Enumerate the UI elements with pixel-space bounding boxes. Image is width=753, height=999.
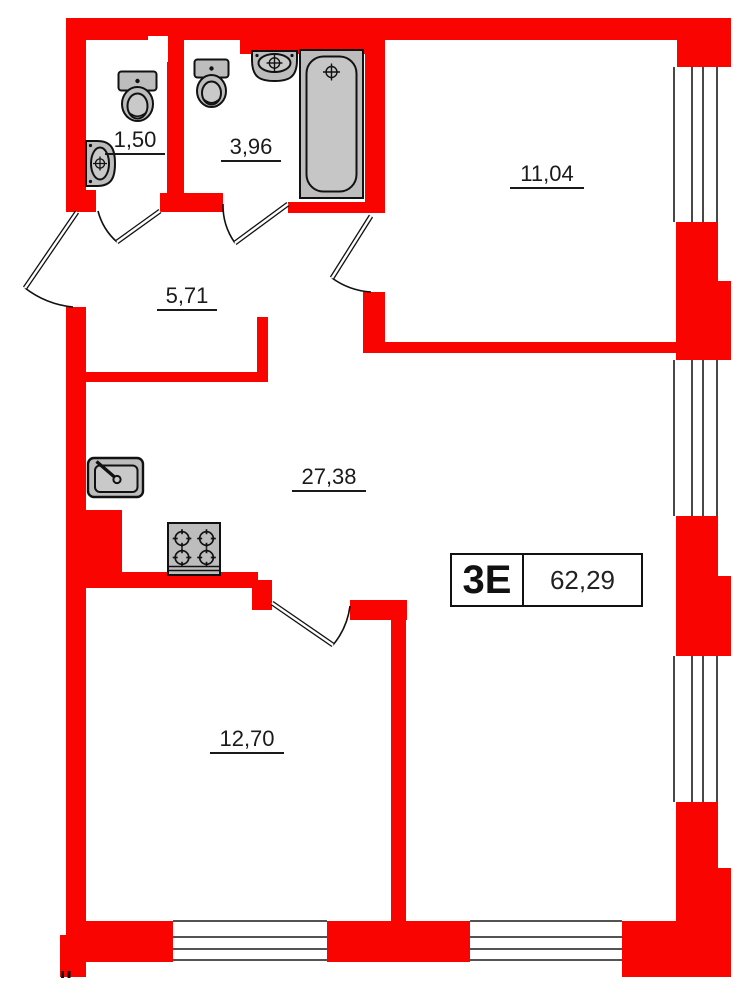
room-area-label-kitchen-living: 27,38 bbox=[292, 464, 366, 492]
kitchen-sink-icon bbox=[88, 458, 143, 497]
floor-plan: 1,50 3,96 11,04 5,71 27,38 12,70 3Е 62,2… bbox=[0, 0, 753, 999]
room-area-label-bathroom: 3,96 bbox=[221, 134, 281, 162]
unit-total-area: 62,29 bbox=[524, 555, 641, 605]
window-bottom-1 bbox=[173, 921, 327, 960]
room-area-label-room-top-right: 11,04 bbox=[510, 161, 584, 189]
wall-sink-icon bbox=[252, 51, 297, 81]
room-area-label-wc: 1,50 bbox=[105, 127, 165, 155]
toilet-icon bbox=[195, 60, 229, 108]
unit-info-box: 3Е 62,29 bbox=[450, 553, 643, 607]
window-right-3 bbox=[674, 656, 717, 802]
wc-door bbox=[98, 211, 160, 242]
bathroom-door bbox=[223, 204, 288, 243]
bathtub-icon bbox=[300, 50, 363, 198]
stove-icon bbox=[168, 523, 220, 575]
window-right-2 bbox=[674, 360, 717, 516]
window-right-1 bbox=[674, 67, 717, 222]
window-bottom-2 bbox=[470, 921, 622, 960]
toilet-icon bbox=[119, 72, 157, 122]
room2-door bbox=[272, 603, 350, 645]
corner-tick-marks bbox=[61, 971, 71, 978]
room1-door bbox=[332, 216, 371, 292]
room-area-label-hallway: 5,71 bbox=[157, 283, 217, 311]
entrance-door bbox=[25, 212, 77, 307]
room-area-label-room-bottom: 12,70 bbox=[210, 726, 284, 754]
unit-type-label: 3Е bbox=[452, 555, 524, 605]
